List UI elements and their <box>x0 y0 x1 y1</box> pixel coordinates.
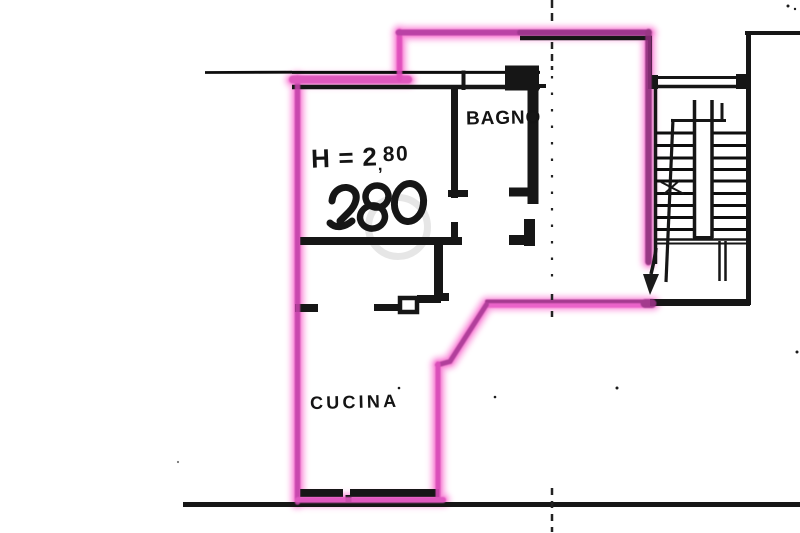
svg-text:H = 2,80: H = 2,80 <box>311 140 410 176</box>
svg-text:BAGNO: BAGNO <box>466 107 542 129</box>
svg-text:CUCINA: CUCINA <box>310 391 400 413</box>
